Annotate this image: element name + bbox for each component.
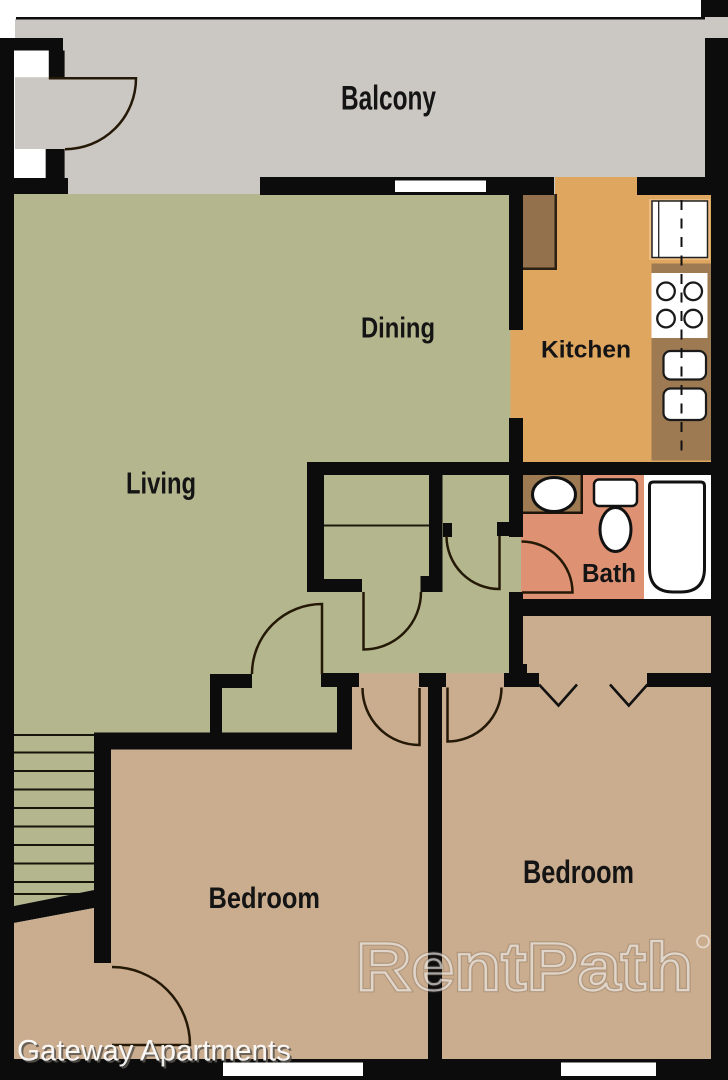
svg-text:Balcony: Balcony: [341, 80, 436, 118]
svg-text:RentPath: RentPath: [356, 929, 693, 1005]
svg-text:Gateway Apartments: Gateway Apartments: [17, 1035, 291, 1068]
svg-text:Bedroom: Bedroom: [209, 882, 321, 915]
svg-text:Bath: Bath: [582, 560, 636, 588]
svg-text:Dining: Dining: [361, 313, 435, 345]
svg-text:Living: Living: [126, 466, 196, 501]
svg-text:Kitchen: Kitchen: [541, 337, 631, 364]
svg-text:Bedroom: Bedroom: [523, 854, 634, 890]
